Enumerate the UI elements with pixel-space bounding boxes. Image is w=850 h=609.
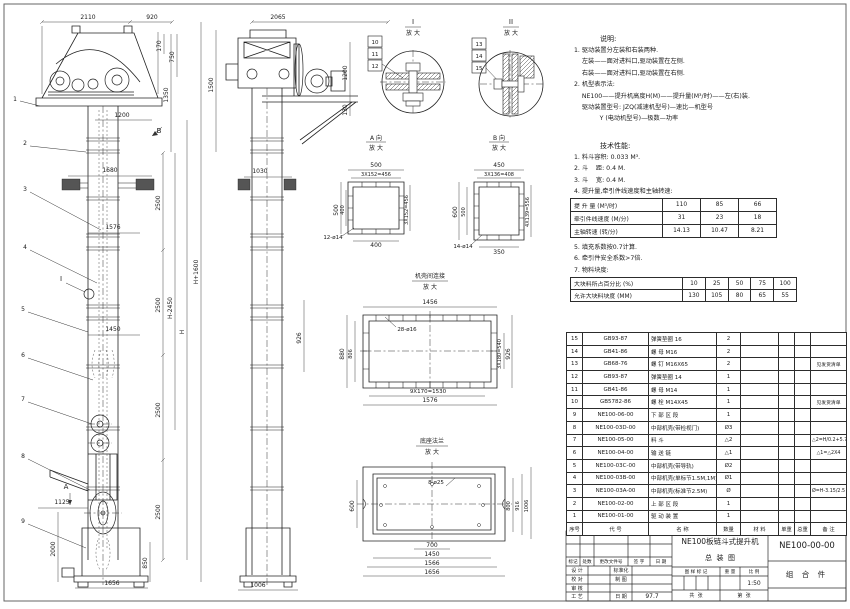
value-cell: 14.13 bbox=[663, 225, 701, 238]
table-row: 主轴转速 (转/分)14.1310.478.21 bbox=[571, 225, 777, 238]
parts-cell-no: 6 bbox=[567, 447, 583, 460]
parts-cell-remark bbox=[811, 472, 847, 485]
notes-list: 1. 驱动装置分左装和右装两种. 左装——面对进料口,驱动装置在左侧. 右装——… bbox=[574, 45, 846, 125]
parts-cell-mat bbox=[741, 345, 779, 358]
tech-list-top: 1. 料斗容积: 0.033 M³.2. 斗 距: 0.4 M.3. 斗 宽: … bbox=[574, 152, 846, 198]
parts-cell-uw bbox=[779, 396, 795, 409]
parts-cell-remark bbox=[811, 383, 847, 396]
tech-line: 1. 料斗容积: 0.033 M³. bbox=[574, 152, 846, 163]
tech-section: 技术性能: 1. 料斗容积: 0.033 M³.2. 斗 距: 0.4 M.3.… bbox=[574, 141, 846, 198]
parts-cell-name: 螺 母 M14 bbox=[649, 383, 717, 396]
parts-cell-code: GB93-87 bbox=[583, 371, 649, 384]
value-cell: 110 bbox=[663, 199, 701, 212]
parts-cell-mat bbox=[741, 358, 779, 371]
parts-cell-tw bbox=[795, 447, 811, 460]
dim-label: 500 bbox=[461, 207, 467, 217]
dim-label: 放 大 bbox=[423, 283, 437, 291]
dim-label: 放 大 bbox=[369, 144, 383, 152]
value-cell: 25 bbox=[705, 278, 728, 290]
dim-label: 1030 bbox=[252, 168, 267, 175]
label-date: 日 期 bbox=[610, 592, 632, 601]
table-row: 允许大块料块度 (MM)130105806555 bbox=[571, 290, 797, 302]
dim-label: 12-ø14 bbox=[323, 235, 343, 241]
parts-cell-code: GB41-86 bbox=[583, 383, 649, 396]
parts-row: 12GB93-87弹簧垫圈 141 bbox=[567, 371, 847, 384]
dim-label: H-2450 bbox=[167, 297, 174, 319]
dim-label: 600 bbox=[349, 500, 356, 512]
dim-label: 12 bbox=[372, 64, 379, 70]
dim-label: 600 bbox=[452, 206, 459, 218]
parts-cell-code: NE100-03D-00 bbox=[583, 421, 649, 434]
dim-label: 2065 bbox=[270, 14, 285, 21]
parts-row: 10GB5782-86螺 栓 M14X451见发货清单 bbox=[567, 396, 847, 409]
dim-label: 1680 bbox=[102, 167, 117, 174]
rev-label-date: 日 期 bbox=[650, 557, 672, 566]
value-cell: 130 bbox=[683, 290, 706, 302]
dim-label: 9X170=1530 bbox=[410, 389, 447, 395]
parts-row: 4NE100-03B-00中部机壳(单标节1.5M,1M)Ø1 bbox=[567, 472, 847, 485]
parts-cell-code: GB93-87 bbox=[583, 333, 649, 346]
dim-label: 850 bbox=[142, 557, 149, 569]
value-cell: 75 bbox=[751, 278, 774, 290]
dim-label: 2500 bbox=[155, 504, 162, 519]
dim-label: 3X180=540 bbox=[497, 339, 503, 369]
notes-section: 说明: 1. 驱动装置分左装和右装两种. 左装——面对进料口,驱动装置在左侧. … bbox=[574, 34, 846, 125]
table-row: 大块料所占百分比 (%)10255075100 bbox=[571, 278, 797, 290]
label-stamp: 图 样 标 记 bbox=[672, 567, 720, 576]
notes-title: 说明: bbox=[600, 34, 846, 44]
table-row: 提 升 量 (M³/时)1108566 bbox=[571, 199, 777, 212]
row-label: 提 升 量 (M³/时) bbox=[571, 199, 663, 212]
dim-label: 放 大 bbox=[492, 144, 506, 152]
parts-cell-no: 3 bbox=[567, 485, 583, 498]
dim-label: 1566 bbox=[424, 560, 439, 567]
parts-cell-tw bbox=[795, 345, 811, 358]
row-label: 大块料所占百分比 (%) bbox=[571, 278, 683, 290]
parts-cell-name: 螺 栓 M14X45 bbox=[649, 396, 717, 409]
parts-cell-name: 料 斗 bbox=[649, 434, 717, 447]
parts-cell-qty: Ø bbox=[717, 485, 741, 498]
parts-cell-code: NE100-06-00 bbox=[583, 409, 649, 422]
dim-label: 2500 bbox=[155, 402, 162, 417]
parts-cell-remark bbox=[811, 497, 847, 510]
parts-header-cell: 代 号 bbox=[583, 523, 649, 536]
value-cell: 55 bbox=[774, 290, 797, 302]
dim-label: 450 bbox=[493, 162, 505, 169]
value-cell: 85 bbox=[701, 199, 739, 212]
parts-cell-remark bbox=[811, 510, 847, 523]
parts-cell-name: 弹簧垫圈 16 bbox=[649, 333, 717, 346]
parts-cell-remark bbox=[811, 345, 847, 358]
label-craft: 工 艺 bbox=[566, 592, 588, 601]
parts-cell-code: NE100-01-00 bbox=[583, 510, 649, 523]
parts-cell-qty: 1 bbox=[717, 510, 741, 523]
tech-line: 4. 提升量,牵引件线速度和主轴转速: bbox=[574, 186, 846, 197]
parts-cell-code: NE100-03A-00 bbox=[583, 485, 649, 498]
label-design: 设 计 bbox=[566, 566, 588, 575]
tech-line: 5. 填充系数按0.7计算. bbox=[574, 242, 846, 253]
parts-cell-qty: △2 bbox=[717, 434, 741, 447]
parts-cell-qty: 2 bbox=[717, 345, 741, 358]
parts-cell-no: 5 bbox=[567, 459, 583, 472]
dim-label: 14-ø14 bbox=[453, 244, 473, 250]
row-label: 主轴转速 (转/分) bbox=[571, 225, 663, 238]
drawing-number: NE100-00-00 bbox=[768, 531, 846, 561]
parts-cell-remark bbox=[811, 409, 847, 422]
dim-label: 1576 bbox=[105, 224, 120, 231]
dim-label: 3 bbox=[23, 186, 27, 193]
dim-label: 1350 bbox=[163, 87, 170, 102]
dim-label: 500 bbox=[370, 162, 382, 169]
tech-line: 6. 牵引件安全系数>7倍. bbox=[574, 253, 846, 264]
drawing-title-line2: 总 装 图 bbox=[672, 550, 768, 566]
parts-cell-uw bbox=[779, 333, 795, 346]
dim-label: 1450 bbox=[105, 326, 120, 333]
parts-cell-uw bbox=[779, 485, 795, 498]
tech-line: 7. 物料块度: bbox=[574, 265, 846, 276]
dim-label: 926 bbox=[296, 332, 303, 344]
parts-cell-tw bbox=[795, 409, 811, 422]
parts-cell-name: 螺 母 M16 bbox=[649, 345, 717, 358]
parts-cell-mat bbox=[741, 396, 779, 409]
value-cell: 8.21 bbox=[739, 225, 777, 238]
dim-label: B bbox=[157, 127, 162, 135]
dim-label: 2 bbox=[23, 140, 27, 147]
parts-cell-no: 14 bbox=[567, 345, 583, 358]
parts-cell-name: 弹簧垫圈 14 bbox=[649, 371, 717, 384]
value-cell: 65 bbox=[751, 290, 774, 302]
dim-label: 3X152=456 bbox=[404, 195, 410, 225]
parts-cell-name: 下 部 区 段 bbox=[649, 409, 717, 422]
dim-label: 1576 bbox=[422, 397, 437, 404]
parts-cell-name: 驱 动 装 置 bbox=[649, 510, 717, 523]
tech-line: 2. 斗 距: 0.4 M. bbox=[574, 163, 846, 174]
dimension-labels: 2110920170750135015001200168015761450250… bbox=[13, 14, 531, 589]
parts-cell-name: 输 送 链 bbox=[649, 447, 717, 460]
parts-row: 3NE100-03A-00中部机壳(标准节2.5M)ØØ=H-3.15/2.5 bbox=[567, 485, 847, 498]
parts-row: 8NE100-03D-00中部机壳(带检视门)Ø3 bbox=[567, 421, 847, 434]
parts-cell-uw bbox=[779, 497, 795, 510]
dim-label: 916 bbox=[515, 501, 521, 511]
note-line: 右装——面对进料口,驱动装置在右侧. bbox=[574, 68, 846, 79]
dim-label: I bbox=[60, 275, 62, 283]
label-draft: 制 图 bbox=[610, 575, 632, 584]
dim-label: I bbox=[412, 18, 414, 26]
parts-cell-remark: 见发货清单 bbox=[811, 396, 847, 409]
dim-label: 4X139=556 bbox=[525, 197, 531, 227]
note-line: NE100——提升机高度H(M)——提升量(M³/时)——左(右)装. bbox=[574, 91, 846, 102]
block-size-table: 大块料所占百分比 (%)10255075100允许大块料块度 (MM)13010… bbox=[570, 277, 797, 302]
label-audit: 审 核 bbox=[566, 584, 588, 592]
dim-label: 底座法兰 bbox=[420, 437, 444, 445]
dim-label: 8 bbox=[21, 453, 25, 460]
speed-table: 提 升 量 (M³/时)1108566牵引件线速度 (M/分)312318主轴转… bbox=[570, 198, 777, 238]
dim-label: H bbox=[179, 330, 186, 335]
dim-label: 机壳间连接 bbox=[415, 272, 445, 280]
dim-label: 170 bbox=[156, 40, 163, 52]
parts-cell-mat bbox=[741, 383, 779, 396]
note-line: 2. 机型表示法: bbox=[574, 79, 846, 90]
dim-label: 28-ø16 bbox=[397, 327, 417, 333]
value-cell: 10 bbox=[683, 278, 706, 290]
dim-label: 14 bbox=[476, 54, 483, 60]
rev-label-sign: 签 字 bbox=[628, 557, 650, 566]
parts-cell-uw bbox=[779, 409, 795, 422]
dim-label: 3X152=456 bbox=[361, 172, 391, 178]
table-row: 牵引件线速度 (M/分)312318 bbox=[571, 212, 777, 225]
label-scale: 比 例 bbox=[740, 567, 768, 576]
dim-label: 放 大 bbox=[406, 29, 420, 37]
parts-cell-no: 13 bbox=[567, 358, 583, 371]
label-page: 第 张 bbox=[720, 590, 768, 601]
dim-label: B 向 bbox=[493, 134, 505, 142]
value-cell: 80 bbox=[728, 290, 751, 302]
drive-machinery bbox=[50, 44, 329, 534]
dim-label: A 向 bbox=[370, 134, 382, 142]
dim-label: 1656 bbox=[104, 580, 119, 587]
dim-label: 1200 bbox=[342, 65, 349, 80]
parts-cell-tw bbox=[795, 472, 811, 485]
parts-cell-mat bbox=[741, 497, 779, 510]
parts-row: 7NE100-05-00料 斗△2△2=H/0.2+5.75 bbox=[567, 434, 847, 447]
value-cell: 10.47 bbox=[701, 225, 739, 238]
dim-label: 880 bbox=[339, 348, 346, 360]
parts-row: 6NE100-04-00输 送 链△1△1=△2X4 bbox=[567, 447, 847, 460]
parts-header-cell: 序号 bbox=[567, 523, 583, 536]
parts-cell-mat bbox=[741, 434, 779, 447]
parts-cell-remark: Ø=H-3.15/2.5 bbox=[811, 485, 847, 498]
elevation-outlines bbox=[36, 26, 358, 587]
parts-cell-no: 7 bbox=[567, 434, 583, 447]
dim-label: 926 bbox=[505, 348, 512, 360]
parts-row: 1NE100-01-00驱 动 装 置1 bbox=[567, 510, 847, 523]
parts-cell-uw bbox=[779, 383, 795, 396]
note-line: 驱动装置型号: JZQ(减速机型号)—速比—机型号 bbox=[574, 102, 846, 113]
value-cell: 100 bbox=[774, 278, 797, 290]
drawing-title-line1: NE100板链斗式提升机 bbox=[672, 533, 768, 550]
dim-label: 800 bbox=[506, 501, 512, 511]
flange-lines bbox=[80, 138, 524, 509]
parts-row: 5NE100-03C-00中部机壳(带导轨)Ø2 bbox=[567, 459, 847, 472]
parts-row: 15GB93-87弹簧垫圈 162 bbox=[567, 333, 847, 346]
dim-label: 2000 bbox=[50, 541, 57, 556]
value-cell: 105 bbox=[705, 290, 728, 302]
parts-cell-mat bbox=[741, 447, 779, 460]
dim-label: 4 bbox=[23, 244, 27, 251]
dim-label: 2500 bbox=[155, 297, 162, 312]
note-line: 左装——面对进料口,驱动装置在左侧. bbox=[574, 56, 846, 67]
tech-line: 3. 斗 宽: 0.4 M. bbox=[574, 175, 846, 186]
label-sheets: 共 张 bbox=[672, 590, 720, 601]
dim-label: A bbox=[64, 483, 69, 491]
parts-cell-qty: Ø3 bbox=[717, 421, 741, 434]
parts-cell-no: 10 bbox=[567, 396, 583, 409]
parts-cell-no: 12 bbox=[567, 371, 583, 384]
parts-row: 13GB68-76螺 钉 M16X652见发货清单 bbox=[567, 358, 847, 371]
row-label: 牵引件线速度 (M/分) bbox=[571, 212, 663, 225]
parts-cell-uw bbox=[779, 510, 795, 523]
parts-cell-tw bbox=[795, 485, 811, 498]
tech-list-mid: 5. 填充系数按0.7计算.6. 牵引件安全系数>7倍.7. 物料块度: bbox=[574, 242, 846, 276]
dim-label: 6 bbox=[21, 352, 25, 359]
dim-label: 1125 bbox=[54, 499, 69, 506]
dim-label: 2110 bbox=[80, 14, 95, 21]
parts-row: 2NE100-02-00上 部 区 段1 bbox=[567, 497, 847, 510]
parts-table: 15GB93-87弹簧垫圈 16214GB41-86螺 母 M16213GB68… bbox=[566, 332, 847, 536]
parts-cell-tw bbox=[795, 396, 811, 409]
parts-row: 9NE100-06-00下 部 区 段1 bbox=[567, 409, 847, 422]
row-label: 允许大块料块度 (MM) bbox=[571, 290, 683, 302]
parts-cell-remark bbox=[811, 421, 847, 434]
parts-cell-qty: 1 bbox=[717, 371, 741, 384]
parts-cell-mat bbox=[741, 485, 779, 498]
dim-label: 1006 bbox=[524, 500, 530, 513]
dim-label: 1 bbox=[13, 96, 17, 103]
label-weight: 重 量 bbox=[720, 567, 740, 576]
dim-label: II bbox=[509, 18, 513, 26]
parts-cell-qty: 1 bbox=[717, 497, 741, 510]
parts-cell-qty: △1 bbox=[717, 447, 741, 460]
dim-label: 700 bbox=[426, 542, 438, 549]
dim-label: 1500 bbox=[208, 77, 215, 92]
label-standard: 标准化 bbox=[610, 566, 632, 575]
dim-label: 1656 bbox=[424, 569, 439, 576]
parts-cell-tw bbox=[795, 371, 811, 384]
parts-cell-no: 11 bbox=[567, 383, 583, 396]
note-line: 1. 驱动装置分左装和右装两种. bbox=[574, 45, 846, 56]
parts-row: 14GB41-86螺 母 M162 bbox=[567, 345, 847, 358]
parts-cell-remark bbox=[811, 459, 847, 472]
dim-label: 500 bbox=[333, 204, 340, 216]
leader-lines bbox=[20, 27, 519, 548]
parts-cell-no: 8 bbox=[567, 421, 583, 434]
dim-label: 2500 bbox=[155, 195, 162, 210]
parts-cell-tw bbox=[795, 434, 811, 447]
parts-cell-qty: 1 bbox=[717, 383, 741, 396]
parts-cell-remark: △1=△2X4 bbox=[811, 447, 847, 460]
parts-cell-code: NE100-03C-00 bbox=[583, 459, 649, 472]
value-cell: 18 bbox=[739, 212, 777, 225]
parts-cell-mat bbox=[741, 510, 779, 523]
dim-label: 1006 bbox=[250, 582, 265, 589]
dim-label: 400 bbox=[370, 242, 382, 249]
parts-cell-no: 1 bbox=[567, 510, 583, 523]
dim-label: 400 bbox=[340, 205, 346, 215]
parts-cell-no: 2 bbox=[567, 497, 583, 510]
dim-label: 920 bbox=[146, 14, 158, 21]
value-cell: 50 bbox=[728, 278, 751, 290]
note-line: Y (电动机型号)—极数—功率 bbox=[574, 113, 846, 124]
label-check: 校 对 bbox=[566, 575, 588, 584]
parts-cell-name: 螺 钉 M16X65 bbox=[649, 358, 717, 371]
dim-label: 350 bbox=[493, 249, 505, 256]
dim-label: H+1600 bbox=[193, 259, 200, 284]
parts-cell-uw bbox=[779, 434, 795, 447]
parts-cell-name: 中部机壳(标准节2.5M) bbox=[649, 485, 717, 498]
parts-cell-tw bbox=[795, 333, 811, 346]
parts-cell-code: NE100-02-00 bbox=[583, 497, 649, 510]
dim-label: 3X136=408 bbox=[484, 172, 514, 178]
parts-cell-tw bbox=[795, 421, 811, 434]
date-value: 97.7 bbox=[632, 592, 672, 601]
parts-cell-code: GB41-86 bbox=[583, 345, 649, 358]
parts-cell-mat bbox=[741, 472, 779, 485]
parts-cell-qty: Ø2 bbox=[717, 459, 741, 472]
parts-cell-tw bbox=[795, 510, 811, 523]
parts-cell-no: 9 bbox=[567, 409, 583, 422]
dim-label: 放 大 bbox=[504, 29, 518, 37]
rev-label-mark: 标记 bbox=[566, 557, 580, 566]
dim-label: 9 bbox=[21, 518, 25, 525]
parts-cell-code: NE100-03B-00 bbox=[583, 472, 649, 485]
value-cell: 66 bbox=[739, 199, 777, 212]
parts-cell-uw bbox=[779, 459, 795, 472]
tech-section-mid: 5. 填充系数按0.7计算.6. 牵引件安全系数>7倍.7. 物料块度: bbox=[574, 242, 846, 276]
parts-cell-remark: △2=H/0.2+5.75 bbox=[811, 434, 847, 447]
parts-cell-qty: 1 bbox=[717, 396, 741, 409]
parts-cell-uw bbox=[779, 371, 795, 384]
parts-cell-uw bbox=[779, 421, 795, 434]
parts-cell-name: 中部机壳(带导轨) bbox=[649, 459, 717, 472]
tech-title: 技术性能: bbox=[600, 141, 846, 151]
parts-cell-remark bbox=[811, 371, 847, 384]
parts-cell-code: NE100-04-00 bbox=[583, 447, 649, 460]
parts-cell-code: GB68-76 bbox=[583, 358, 649, 371]
parts-cell-tw bbox=[795, 459, 811, 472]
parts-row: 11GB41-86螺 母 M141 bbox=[567, 383, 847, 396]
parts-cell-name: 中部机壳(带检视门) bbox=[649, 421, 717, 434]
parts-cell-no: 4 bbox=[567, 472, 583, 485]
dim-label: 11 bbox=[372, 52, 379, 58]
dim-label: 5 bbox=[21, 306, 25, 313]
parts-cell-uw bbox=[779, 358, 795, 371]
parts-cell-mat bbox=[741, 421, 779, 434]
parts-cell-name: 中部机壳(单标节1.5M,1M) bbox=[649, 472, 717, 485]
parts-cell-qty: 2 bbox=[717, 333, 741, 346]
parts-cell-name: 上 部 区 段 bbox=[649, 497, 717, 510]
dim-label: 10 bbox=[372, 40, 379, 46]
parts-cell-qty: 1 bbox=[717, 409, 741, 422]
parts-cell-uw bbox=[779, 345, 795, 358]
parts-cell-code: GB5782-86 bbox=[583, 396, 649, 409]
dim-label: 放 大 bbox=[425, 448, 439, 456]
parts-cell-no: 15 bbox=[567, 333, 583, 346]
parts-cell-mat bbox=[741, 333, 779, 346]
dim-label: 750 bbox=[169, 51, 176, 63]
part-type: 组 合 件 bbox=[768, 561, 846, 588]
rev-label-count: 处数 bbox=[580, 557, 594, 566]
parts-cell-mat bbox=[741, 459, 779, 472]
parts-cell-uw bbox=[779, 447, 795, 460]
parts-cell-remark bbox=[811, 333, 847, 346]
parts-cell-code: NE100-05-00 bbox=[583, 434, 649, 447]
parts-cell-tw bbox=[795, 358, 811, 371]
dim-label: 1450 bbox=[424, 551, 439, 558]
dim-label: 806 bbox=[348, 349, 354, 359]
parts-cell-tw bbox=[795, 383, 811, 396]
dim-label: 8-ø25 bbox=[428, 480, 444, 486]
parts-cell-mat bbox=[741, 371, 779, 384]
scale-value: 1:50 bbox=[740, 576, 768, 590]
parts-cell-qty: 2 bbox=[717, 358, 741, 371]
parts-cell-remark: 见发货清单 bbox=[811, 358, 847, 371]
dim-label: 13 bbox=[476, 42, 483, 48]
dim-label: 130 bbox=[342, 104, 349, 116]
dim-label: 7 bbox=[21, 396, 25, 403]
dim-label: 1200 bbox=[114, 112, 129, 119]
parts-cell-qty: Ø1 bbox=[717, 472, 741, 485]
rev-label-doc: 更改文件号 bbox=[594, 557, 628, 566]
